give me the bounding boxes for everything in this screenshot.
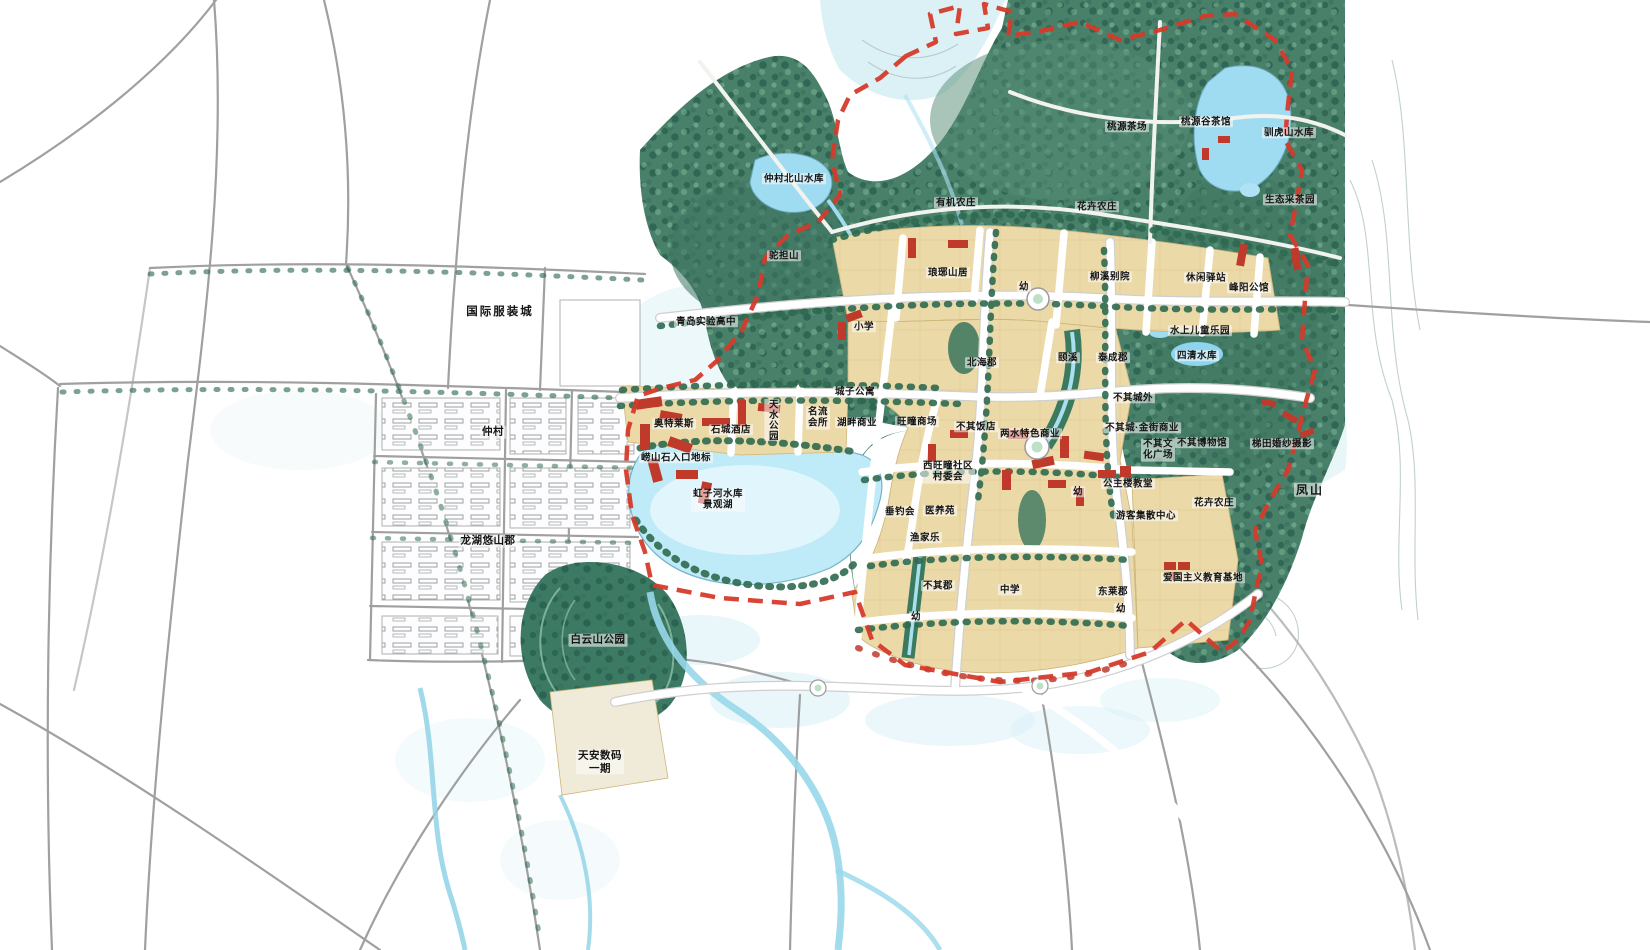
master-plan-map: 桃源茶场桃源谷茶馆驯虎山水库生态采茶园仲村北山水库有机农庄花卉农庄驼担山琅琊山居… bbox=[0, 0, 1650, 950]
map-painting bbox=[0, 0, 1650, 950]
